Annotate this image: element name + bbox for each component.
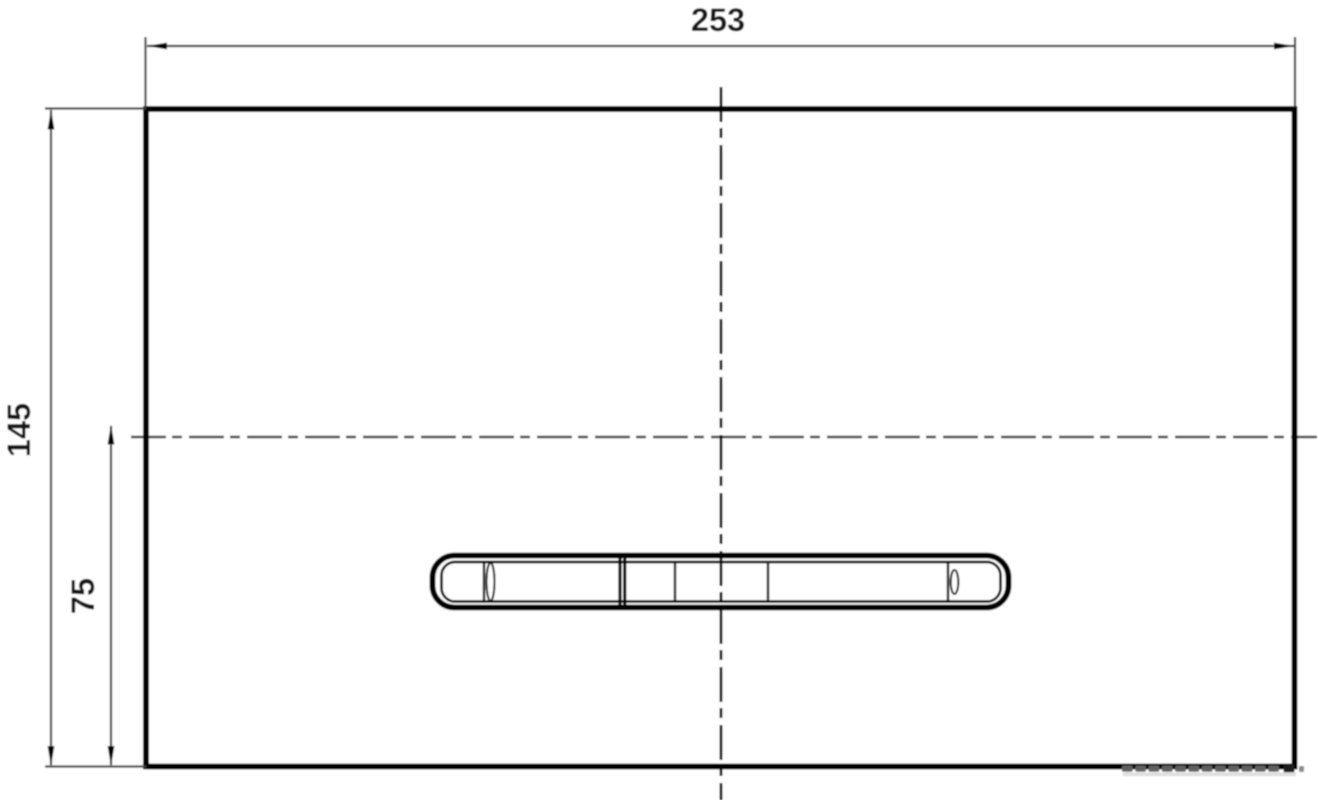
svg-text:145: 145 (1, 403, 37, 457)
svg-text:75: 75 (65, 578, 101, 614)
svg-text:253: 253 (691, 2, 745, 38)
